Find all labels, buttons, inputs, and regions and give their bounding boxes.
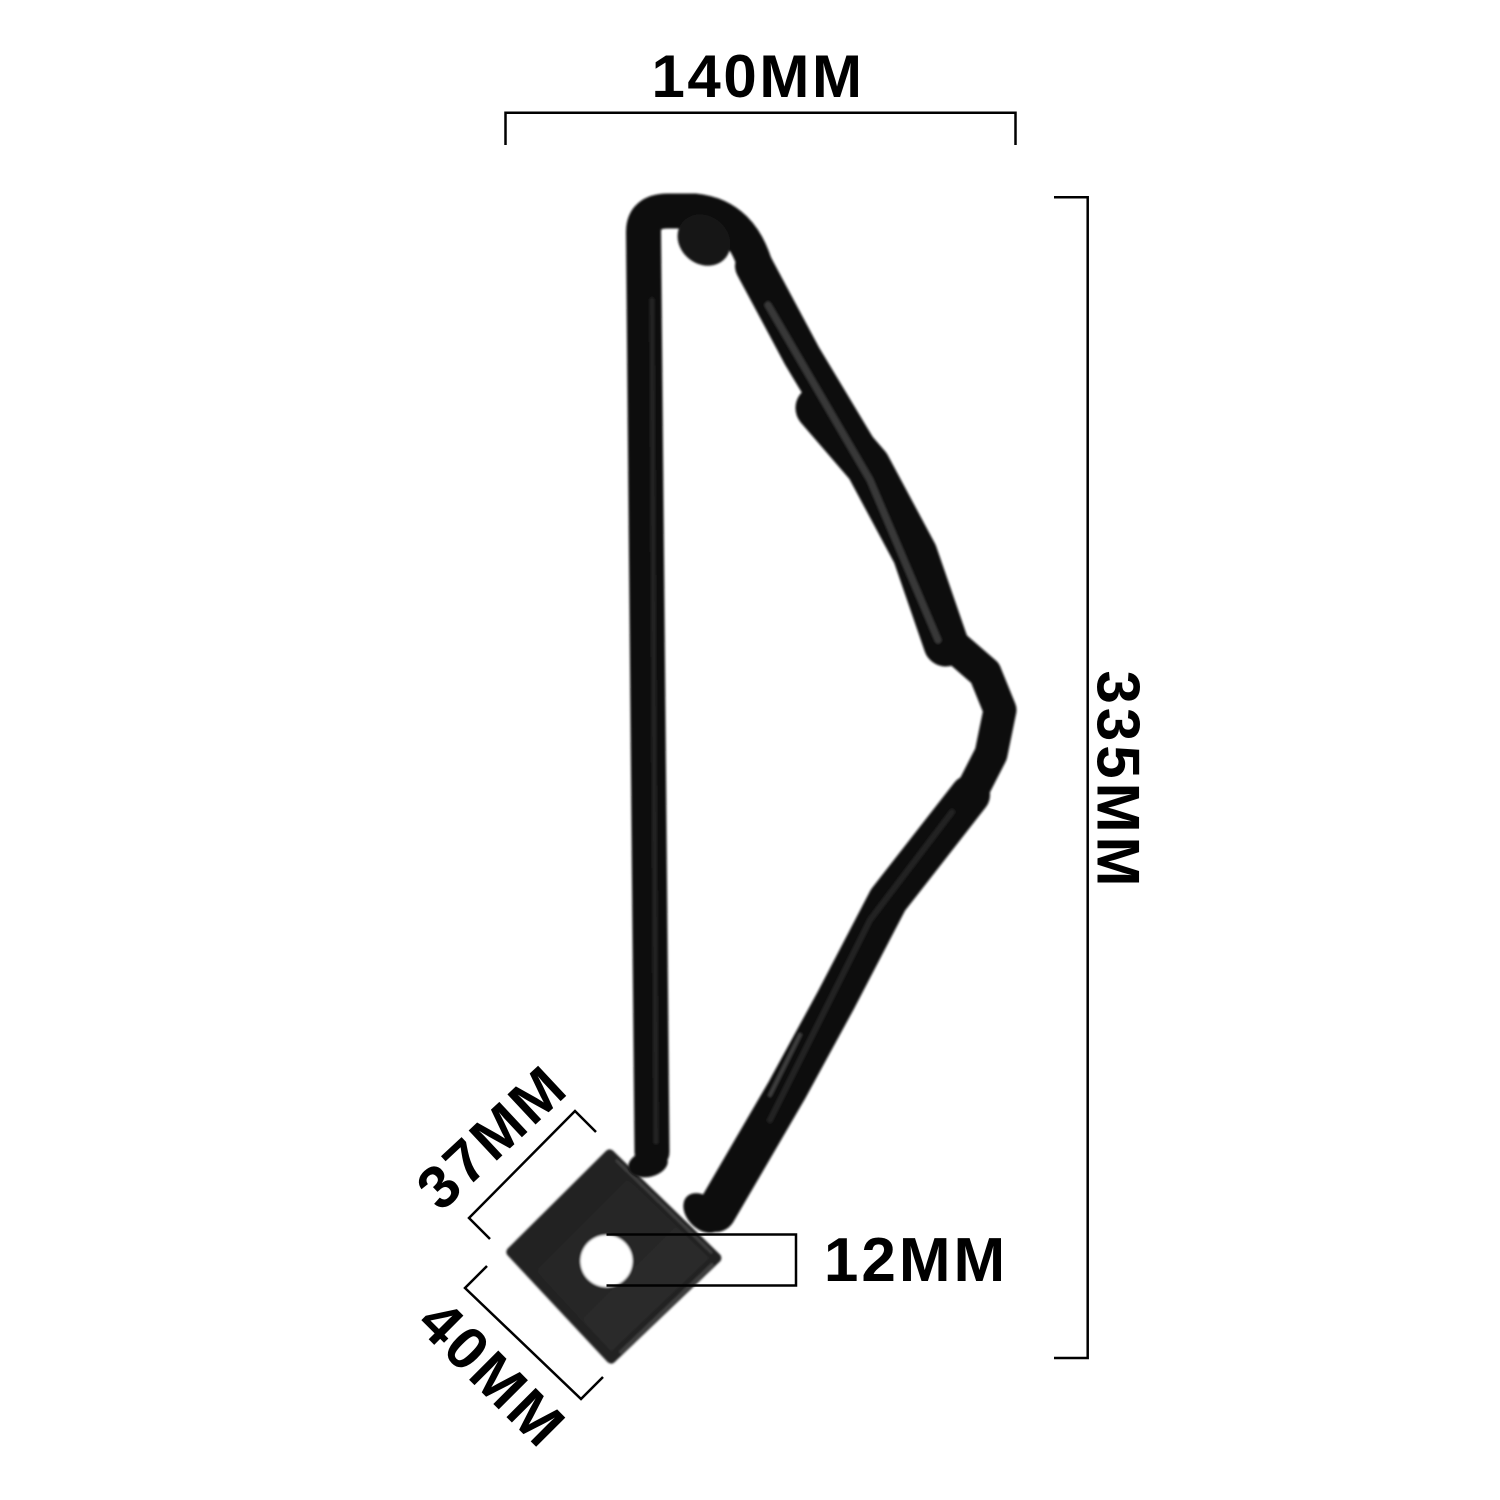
svg-text:140MM: 140MM — [651, 43, 864, 110]
svg-text:335MM: 335MM — [1085, 670, 1152, 890]
svg-text:37MM: 37MM — [404, 1052, 580, 1223]
svg-text:12MM: 12MM — [824, 1226, 1008, 1295]
